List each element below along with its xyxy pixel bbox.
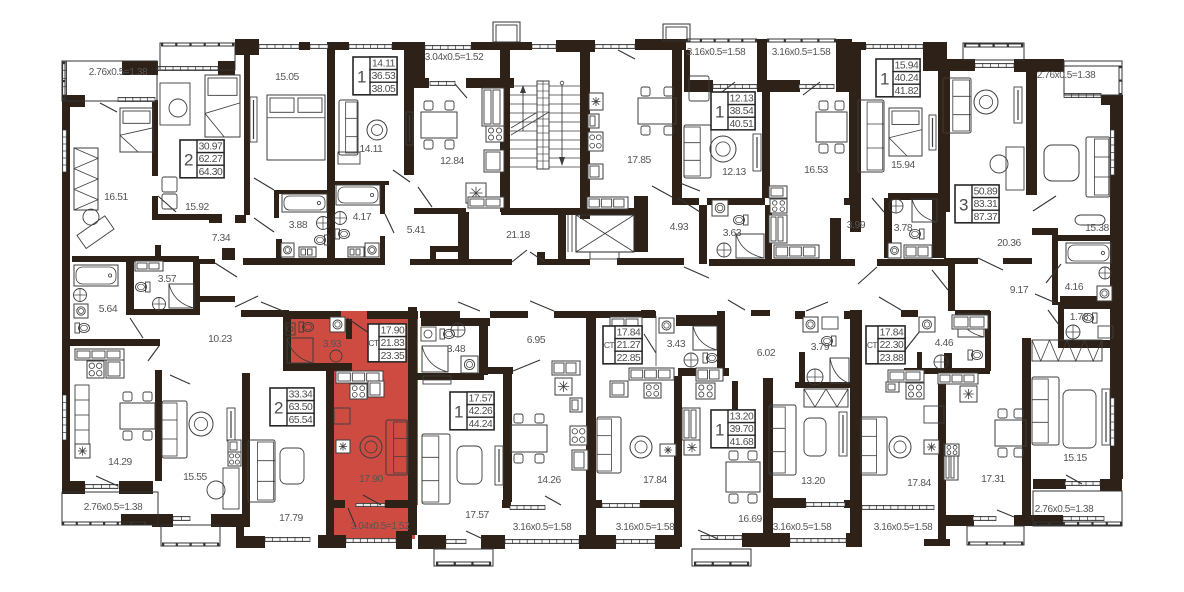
svg-text:22.30: 22.30 xyxy=(880,340,904,351)
svg-text:1: 1 xyxy=(357,67,366,86)
svg-text:3.57: 3.57 xyxy=(158,274,177,285)
svg-text:13.20: 13.20 xyxy=(801,476,825,487)
svg-text:15.05: 15.05 xyxy=(275,72,299,83)
svg-text:4.16: 4.16 xyxy=(1065,282,1084,293)
svg-text:39.70: 39.70 xyxy=(730,424,754,435)
svg-text:3.63: 3.63 xyxy=(723,228,742,239)
svg-text:15.94: 15.94 xyxy=(895,61,919,72)
svg-text:2: 2 xyxy=(274,398,283,417)
svg-text:50.89: 50.89 xyxy=(974,187,998,198)
svg-text:87.37: 87.37 xyxy=(974,212,998,223)
svg-text:2.76х0.5=1.38: 2.76х0.5=1.38 xyxy=(1035,504,1094,515)
svg-text:СТ: СТ xyxy=(604,340,614,350)
svg-text:3.88: 3.88 xyxy=(289,220,308,231)
svg-text:3: 3 xyxy=(959,195,968,214)
svg-text:41.82: 41.82 xyxy=(895,86,919,97)
svg-text:12.84: 12.84 xyxy=(440,156,464,167)
svg-text:22.85: 22.85 xyxy=(617,353,641,364)
svg-text:14.26: 14.26 xyxy=(537,475,561,486)
svg-text:СТ: СТ xyxy=(867,340,877,350)
svg-text:33.34: 33.34 xyxy=(289,390,313,401)
svg-text:9.17: 9.17 xyxy=(1010,285,1029,296)
svg-text:3.16х0.5=1.58: 3.16х0.5=1.58 xyxy=(874,522,933,533)
svg-text:63.50: 63.50 xyxy=(289,402,313,413)
svg-text:17.84: 17.84 xyxy=(880,328,904,339)
svg-text:15.38: 15.38 xyxy=(1085,223,1109,234)
svg-text:17.84: 17.84 xyxy=(907,478,931,489)
svg-text:3.16х0.5=1.58: 3.16х0.5=1.58 xyxy=(772,47,831,58)
svg-text:38.05: 38.05 xyxy=(372,84,396,95)
svg-text:3.43: 3.43 xyxy=(667,339,686,350)
svg-text:65.54: 65.54 xyxy=(289,415,313,426)
svg-text:5.64: 5.64 xyxy=(99,304,118,315)
svg-text:16.69: 16.69 xyxy=(738,514,762,525)
svg-text:12.13: 12.13 xyxy=(730,94,754,105)
svg-text:64.30: 64.30 xyxy=(199,167,223,178)
svg-text:17.85: 17.85 xyxy=(627,155,651,166)
svg-text:17.84: 17.84 xyxy=(617,328,641,339)
svg-text:3.16х0.5=1.58: 3.16х0.5=1.58 xyxy=(616,522,675,533)
svg-text:17.31: 17.31 xyxy=(981,474,1005,485)
svg-text:6.95: 6.95 xyxy=(527,335,546,346)
svg-text:44.24: 44.24 xyxy=(469,419,493,430)
svg-text:21.83: 21.83 xyxy=(381,338,405,349)
svg-text:17.84: 17.84 xyxy=(643,475,667,486)
svg-text:2.76х0.5=1.38: 2.76х0.5=1.38 xyxy=(1037,70,1096,81)
svg-text:40.51: 40.51 xyxy=(730,119,754,130)
svg-text:14.29: 14.29 xyxy=(108,457,132,468)
svg-text:15.92: 15.92 xyxy=(185,202,209,213)
svg-text:17.57: 17.57 xyxy=(469,394,493,405)
svg-text:3.48: 3.48 xyxy=(447,344,466,355)
svg-text:1: 1 xyxy=(454,402,463,421)
svg-text:36.53: 36.53 xyxy=(372,71,396,82)
svg-text:15.55: 15.55 xyxy=(183,472,207,483)
svg-text:17.57: 17.57 xyxy=(465,510,489,521)
svg-text:16.53: 16.53 xyxy=(804,165,828,176)
svg-text:1: 1 xyxy=(715,102,724,121)
svg-text:62.27: 62.27 xyxy=(199,154,223,165)
svg-text:20.36: 20.36 xyxy=(997,238,1021,249)
svg-text:40.24: 40.24 xyxy=(895,73,919,84)
svg-text:3.04х0.5=1.52: 3.04х0.5=1.52 xyxy=(351,521,410,532)
svg-text:42.26: 42.26 xyxy=(469,406,493,417)
svg-text:23.35: 23.35 xyxy=(381,351,405,362)
svg-text:3.79: 3.79 xyxy=(811,342,830,353)
svg-text:4.46: 4.46 xyxy=(935,338,954,349)
svg-text:3.93: 3.93 xyxy=(323,339,342,350)
svg-text:3.04х0.5=1.52: 3.04х0.5=1.52 xyxy=(425,52,484,63)
svg-text:10.23: 10.23 xyxy=(208,334,232,345)
svg-text:15.15: 15.15 xyxy=(1063,453,1087,464)
svg-text:83.31: 83.31 xyxy=(974,199,998,210)
svg-text:1: 1 xyxy=(715,420,724,439)
svg-text:30.97: 30.97 xyxy=(199,142,223,153)
svg-text:СТ: СТ xyxy=(368,338,378,348)
svg-text:13.20: 13.20 xyxy=(730,412,754,423)
svg-text:41.68: 41.68 xyxy=(730,437,754,448)
svg-text:1.78: 1.78 xyxy=(1070,312,1089,323)
svg-text:38.54: 38.54 xyxy=(730,106,754,117)
svg-text:16.51: 16.51 xyxy=(104,192,128,203)
svg-text:17.90: 17.90 xyxy=(359,474,383,485)
svg-text:1: 1 xyxy=(880,69,889,88)
svg-text:3.16х0.5=1.58: 3.16х0.5=1.58 xyxy=(773,522,832,533)
svg-text:14.11: 14.11 xyxy=(359,144,383,155)
svg-text:4.17: 4.17 xyxy=(353,212,372,223)
svg-text:4.93: 4.93 xyxy=(670,222,689,233)
svg-text:2.76х0.5=1.38: 2.76х0.5=1.38 xyxy=(89,67,148,78)
svg-text:14.11: 14.11 xyxy=(372,59,396,70)
svg-text:6.02: 6.02 xyxy=(757,348,776,359)
svg-text:12.13: 12.13 xyxy=(722,167,746,178)
svg-text:2.76х0.5=1.38: 2.76х0.5=1.38 xyxy=(84,502,143,513)
svg-text:3.16х0.5=1.58: 3.16х0.5=1.58 xyxy=(687,47,746,58)
svg-text:21.27: 21.27 xyxy=(617,340,641,351)
svg-text:3.99: 3.99 xyxy=(847,220,866,231)
svg-text:15.94: 15.94 xyxy=(891,160,915,171)
svg-text:21.18: 21.18 xyxy=(506,230,530,241)
svg-text:23.88: 23.88 xyxy=(880,353,904,364)
svg-text:3.78: 3.78 xyxy=(894,223,913,234)
svg-text:5.41: 5.41 xyxy=(407,225,426,236)
svg-text:7.34: 7.34 xyxy=(212,233,231,244)
svg-text:3.16х0.5=1.58: 3.16х0.5=1.58 xyxy=(513,522,572,533)
svg-text:17.79: 17.79 xyxy=(279,513,303,524)
svg-text:17.90: 17.90 xyxy=(381,326,405,337)
svg-text:2: 2 xyxy=(184,150,193,169)
